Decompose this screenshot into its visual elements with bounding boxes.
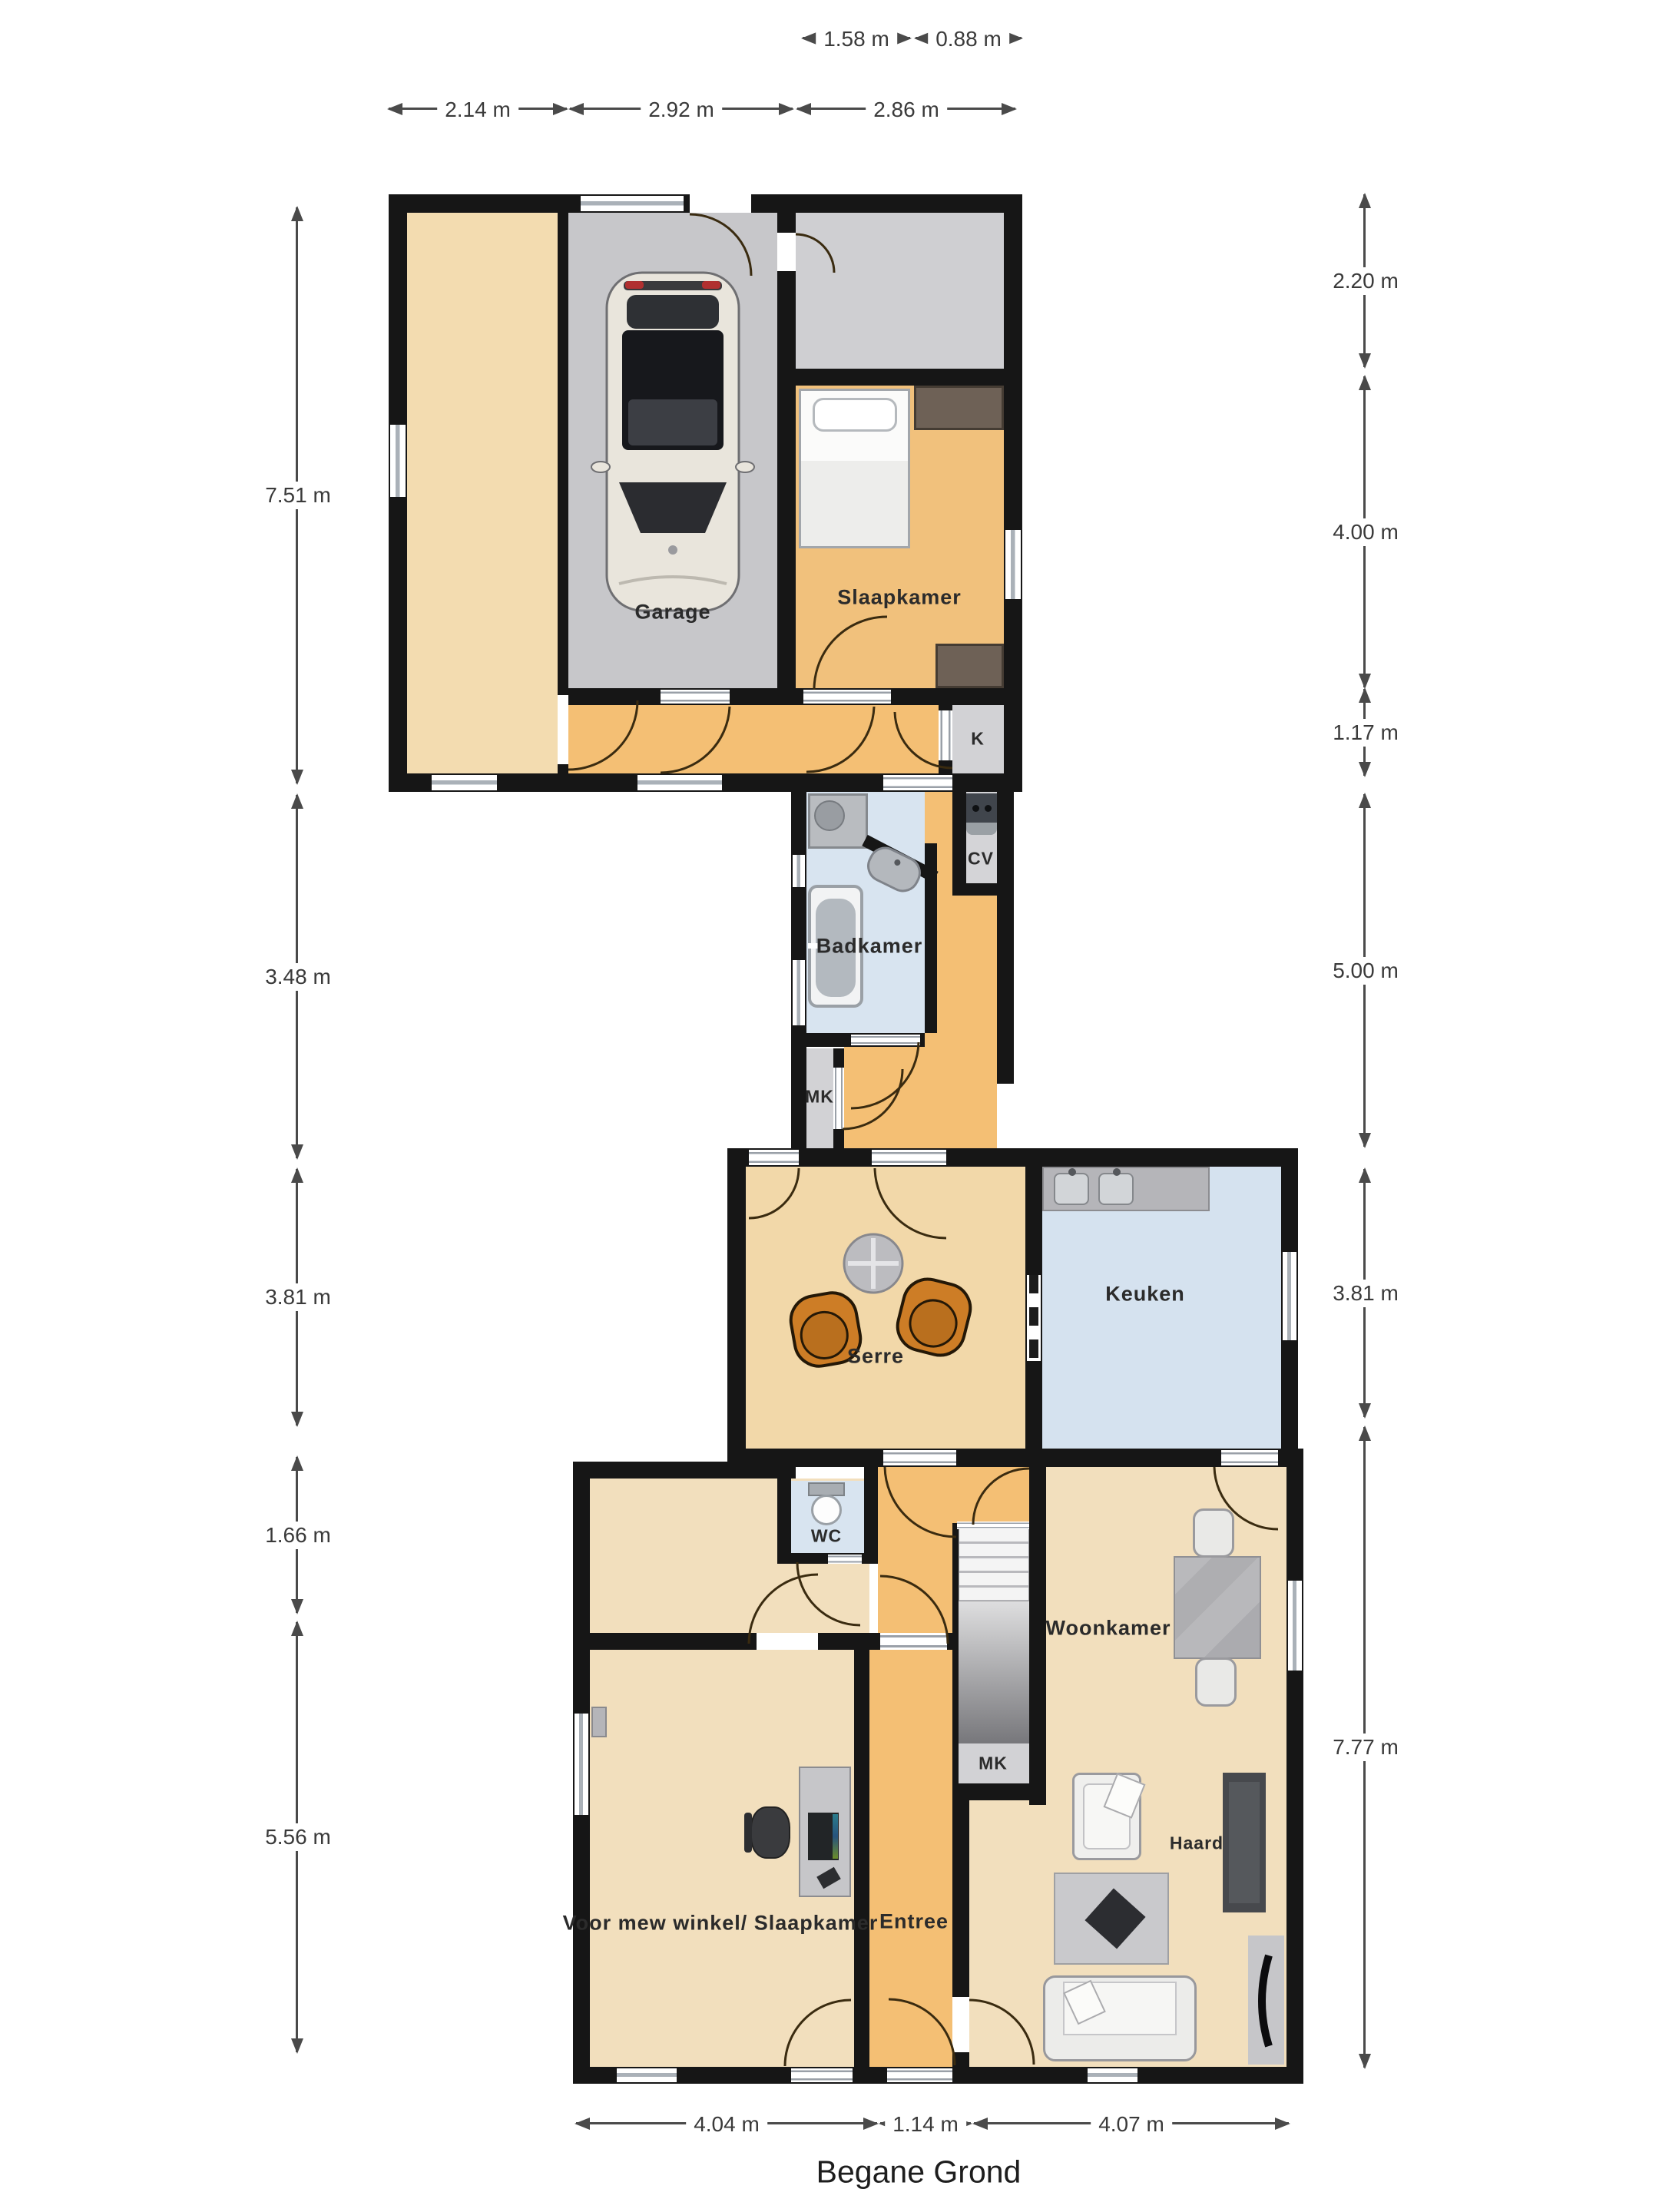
page-title: Begane Grond [816, 2154, 1022, 2190]
room-label-slaapkamer: Slaapkamer [837, 586, 962, 610]
dim-top-1: 0.88 m [916, 37, 1022, 39]
arrow-right-icon [863, 2118, 879, 2130]
arrow-left-icon [575, 2118, 590, 2130]
arrow-up-icon [1359, 1426, 1371, 1441]
dim-left-3: 1.66 m [296, 1457, 298, 1613]
arrow-right-icon [1002, 103, 1017, 115]
dim-right-3: 5.00 m [1363, 794, 1366, 1147]
arrow-left-icon [972, 2118, 988, 2130]
dim-right-0: 2.20 m [1363, 194, 1366, 367]
arrow-right-icon [1008, 32, 1023, 45]
dim-row2-1: 2.92 m [570, 108, 793, 110]
arrow-up-icon [1359, 193, 1371, 208]
tv [1262, 1955, 1269, 2046]
arrow-down-icon [291, 1599, 303, 1614]
dim-bottom-1: 1.14 m [880, 2122, 971, 2124]
room-label-k: K [971, 729, 985, 750]
dim-right-2: 1.17 m [1363, 689, 1366, 776]
dim-right-4: 3.81 m [1363, 1169, 1366, 1417]
arrow-down-icon [1359, 674, 1371, 689]
arrow-down-icon [291, 1144, 303, 1160]
room-label-wc: WC [811, 1526, 842, 1547]
dim-right-1: 4.00 m [1363, 376, 1366, 687]
arrow-up-icon [1359, 793, 1371, 808]
arrow-down-icon [1359, 762, 1371, 777]
room-label-cv: CV [968, 849, 994, 869]
room-label-entree: Entree [879, 1910, 949, 1934]
tub-chair [892, 1274, 975, 1360]
arrow-right-icon [779, 103, 794, 115]
dim-left-0: 7.51 m [296, 207, 298, 783]
arrow-down-icon [291, 2038, 303, 2054]
floorplan-page: Garage Slaapkamer K CV Badkamer MK Serre… [0, 0, 1659, 2212]
arrow-down-icon [291, 1412, 303, 1427]
dim-bottom-0: 4.04 m [576, 2122, 877, 2124]
arrow-up-icon [291, 1167, 303, 1183]
arrow-up-icon [1359, 1167, 1371, 1183]
arrow-up-icon [291, 206, 303, 221]
arrow-left-icon [914, 32, 929, 45]
arrow-left-icon [568, 103, 584, 115]
room-label-serre: Serre [847, 1345, 904, 1369]
dim-top-0: 1.58 m [803, 37, 910, 39]
arrow-down-icon [1359, 2054, 1371, 2069]
room-label-mk-upper: MK [805, 1087, 834, 1108]
arrow-right-icon [1275, 2118, 1290, 2130]
arrow-down-icon [291, 770, 303, 785]
room-label-mk-lower: MK [979, 1753, 1008, 1774]
dim-right-5: 7.77 m [1363, 1427, 1366, 2068]
room-label-badkamer: Badkamer [816, 935, 923, 959]
arrow-down-icon [1359, 353, 1371, 369]
round-table [844, 1234, 902, 1293]
arrow-down-icon [1359, 1403, 1371, 1419]
arrow-up-icon [291, 1621, 303, 1636]
room-label-garage: Garage [634, 601, 710, 624]
arrow-down-icon [1359, 1133, 1371, 1148]
arrow-up-icon [1359, 687, 1371, 703]
room-label-woonkamer: Woonkamer [1045, 1617, 1171, 1641]
car [591, 273, 754, 611]
arrow-left-icon [801, 32, 816, 45]
arrow-right-icon [553, 103, 568, 115]
room-label-keuken: Keuken [1105, 1283, 1185, 1306]
dim-left-1: 3.48 m [296, 795, 298, 1158]
dim-row2-0: 2.14 m [389, 108, 567, 110]
dim-left-2: 3.81 m [296, 1169, 298, 1426]
room-label-shop: Voor mew winkel/ Slaapkamer [563, 1912, 879, 1936]
dim-bottom-2: 4.07 m [974, 2122, 1289, 2124]
dim-row2-2: 2.86 m [797, 108, 1015, 110]
arrow-up-icon [291, 1455, 303, 1471]
arrow-left-icon [387, 103, 402, 115]
arrow-right-icon [896, 32, 912, 45]
arrow-up-icon [1359, 375, 1371, 390]
open-connection-dashed [1027, 1275, 1041, 1361]
dim-left-4: 5.56 m [296, 1622, 298, 2052]
arrow-up-icon [291, 793, 303, 809]
room-label-haard: Haard [1170, 1833, 1224, 1854]
arrow-left-icon [796, 103, 811, 115]
